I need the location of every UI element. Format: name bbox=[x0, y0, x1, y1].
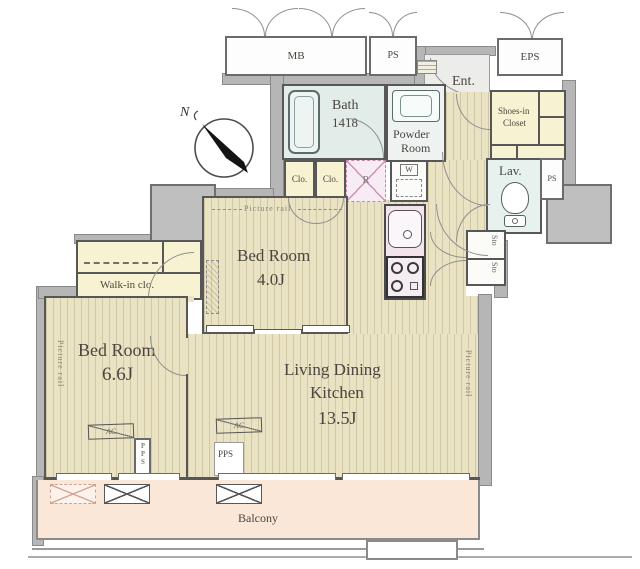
kitchen-faucet bbox=[403, 230, 412, 239]
powder-basin bbox=[400, 95, 432, 117]
shoes-closet: Shoes-in Closet bbox=[490, 90, 566, 160]
pps-left-label: PPS bbox=[139, 442, 146, 466]
stove-knob bbox=[410, 282, 418, 290]
entrance-label: Ent. bbox=[452, 74, 475, 90]
storage-label-2: Sto bbox=[490, 262, 499, 273]
ldk-size: 13.5J bbox=[318, 408, 357, 429]
bed4-rail-dash-left bbox=[212, 209, 242, 210]
ldk-ac-label: AC bbox=[234, 421, 245, 431]
closet-2-label: Clo. bbox=[323, 174, 338, 184]
bed4-duct bbox=[206, 260, 219, 314]
ldk-name-1: Living Dining bbox=[284, 360, 381, 380]
pipe-shaft-side-label: PS bbox=[548, 174, 557, 183]
shoes-shelf-line-h2 bbox=[492, 144, 564, 146]
closet-1: Clo. bbox=[284, 160, 315, 198]
ldk-name-2: Kitchen bbox=[310, 383, 364, 403]
evacuation-hatch bbox=[50, 484, 96, 504]
balcony-rail-line-2 bbox=[28, 556, 632, 558]
pps-right-label: PPS bbox=[218, 449, 233, 459]
mb-door-arc-4 bbox=[332, 8, 365, 36]
compass-n-label: N bbox=[179, 105, 190, 120]
pipe-shaft-top: PS bbox=[369, 36, 417, 76]
washer-outline bbox=[396, 179, 422, 197]
washer-space: W bbox=[390, 160, 428, 202]
lavatory: Lav. bbox=[486, 158, 542, 234]
toilet-bowl bbox=[501, 182, 529, 214]
stove-burner-3 bbox=[391, 280, 403, 292]
bed6-name: Bed Room bbox=[78, 340, 156, 361]
powder-name-1: Powder bbox=[393, 128, 430, 142]
bath-name: Bath bbox=[332, 98, 358, 114]
bed4-size: 4.0J bbox=[257, 270, 285, 290]
pipe-shaft-top-label: PS bbox=[387, 50, 398, 62]
bed6-size: 6.6J bbox=[102, 364, 133, 386]
washer-label: W bbox=[405, 165, 413, 174]
compass: N bbox=[172, 96, 264, 188]
stove-burner-1 bbox=[391, 262, 403, 274]
refrigerator-space: R bbox=[346, 160, 386, 202]
bed4-name: Bed Room bbox=[237, 246, 310, 266]
bed6-ac-label: AC bbox=[106, 427, 117, 437]
compass-needle bbox=[202, 124, 248, 173]
balcony-step bbox=[366, 540, 458, 560]
kitchen-sink bbox=[388, 210, 422, 248]
toilet-button bbox=[512, 218, 518, 224]
entrance-meter-box bbox=[417, 60, 437, 74]
stove-burner-2 bbox=[407, 262, 419, 274]
ldk-ac-box: AC bbox=[216, 417, 262, 434]
storage-divider bbox=[468, 258, 504, 260]
meter-box-room: MB bbox=[225, 36, 367, 76]
closet-1-label: Clo. bbox=[292, 174, 307, 184]
floor-plan: MB PS EPS Ent. Bath 1418 Powder Room Clo… bbox=[0, 0, 640, 569]
walkin-hanger-rod bbox=[84, 262, 158, 264]
eps-door-arc-2 bbox=[532, 12, 564, 39]
ldk-picture-rail: Picture rail bbox=[464, 350, 473, 397]
bed4-sliding-panel-1 bbox=[206, 325, 254, 333]
bathtub-inner bbox=[294, 96, 314, 148]
refrigerator-label: R bbox=[363, 175, 370, 187]
eps-label: EPS bbox=[521, 51, 540, 64]
kitchen-stove bbox=[386, 256, 424, 298]
shoes-label-1: Shoes-in bbox=[498, 106, 530, 116]
ac-outdoor-unit-2 bbox=[216, 484, 262, 504]
bed6-ac-box: AC bbox=[88, 423, 134, 440]
mb-door-arc-1 bbox=[232, 8, 265, 36]
shoes-label-2: Closet bbox=[503, 118, 526, 128]
bedroom-6: Picture rail Bed Room 6.6J AC bbox=[44, 296, 188, 480]
pps-shaft-left: PPS bbox=[134, 438, 151, 478]
storage-label-1: Sto bbox=[490, 235, 499, 246]
pipe-shaft-side: PS bbox=[540, 158, 564, 200]
bed4-sliding-panel-3 bbox=[302, 325, 350, 333]
wall-ldk-right bbox=[478, 294, 492, 486]
eps-room: EPS bbox=[497, 38, 563, 76]
balcony-label: Balcony bbox=[238, 512, 278, 526]
shoes-shelf-line-v bbox=[538, 92, 540, 144]
compass-n-flourish bbox=[194, 111, 198, 120]
powder-name-2: Room bbox=[401, 142, 430, 156]
mb-door-arc-2 bbox=[265, 8, 298, 36]
washer-label-box: W bbox=[400, 164, 418, 176]
ps-door-arc-1 bbox=[369, 12, 393, 36]
ps-door-arc-2 bbox=[393, 12, 417, 36]
lav-label: Lav. bbox=[499, 164, 522, 179]
bed4-picture-rail: Picture rail bbox=[244, 204, 291, 213]
pps-area-right: PPS bbox=[214, 442, 244, 476]
hall-to-ldk bbox=[428, 296, 478, 338]
walkin-label: Walk-in clo. bbox=[100, 279, 154, 292]
ac-outdoor-unit-1 bbox=[104, 484, 150, 504]
shoes-shelf-line-v2 bbox=[516, 144, 518, 158]
eps-door-arc-1 bbox=[500, 12, 532, 39]
closet-2: Clo. bbox=[315, 160, 346, 198]
meter-box-label: MB bbox=[287, 50, 304, 63]
shoes-shelf-line-h1 bbox=[538, 116, 564, 118]
bed6-picture-rail: Picture rail bbox=[56, 340, 65, 387]
mb-door-arc-3 bbox=[299, 8, 332, 36]
powder-sink bbox=[392, 90, 440, 122]
bathtub bbox=[288, 90, 320, 154]
